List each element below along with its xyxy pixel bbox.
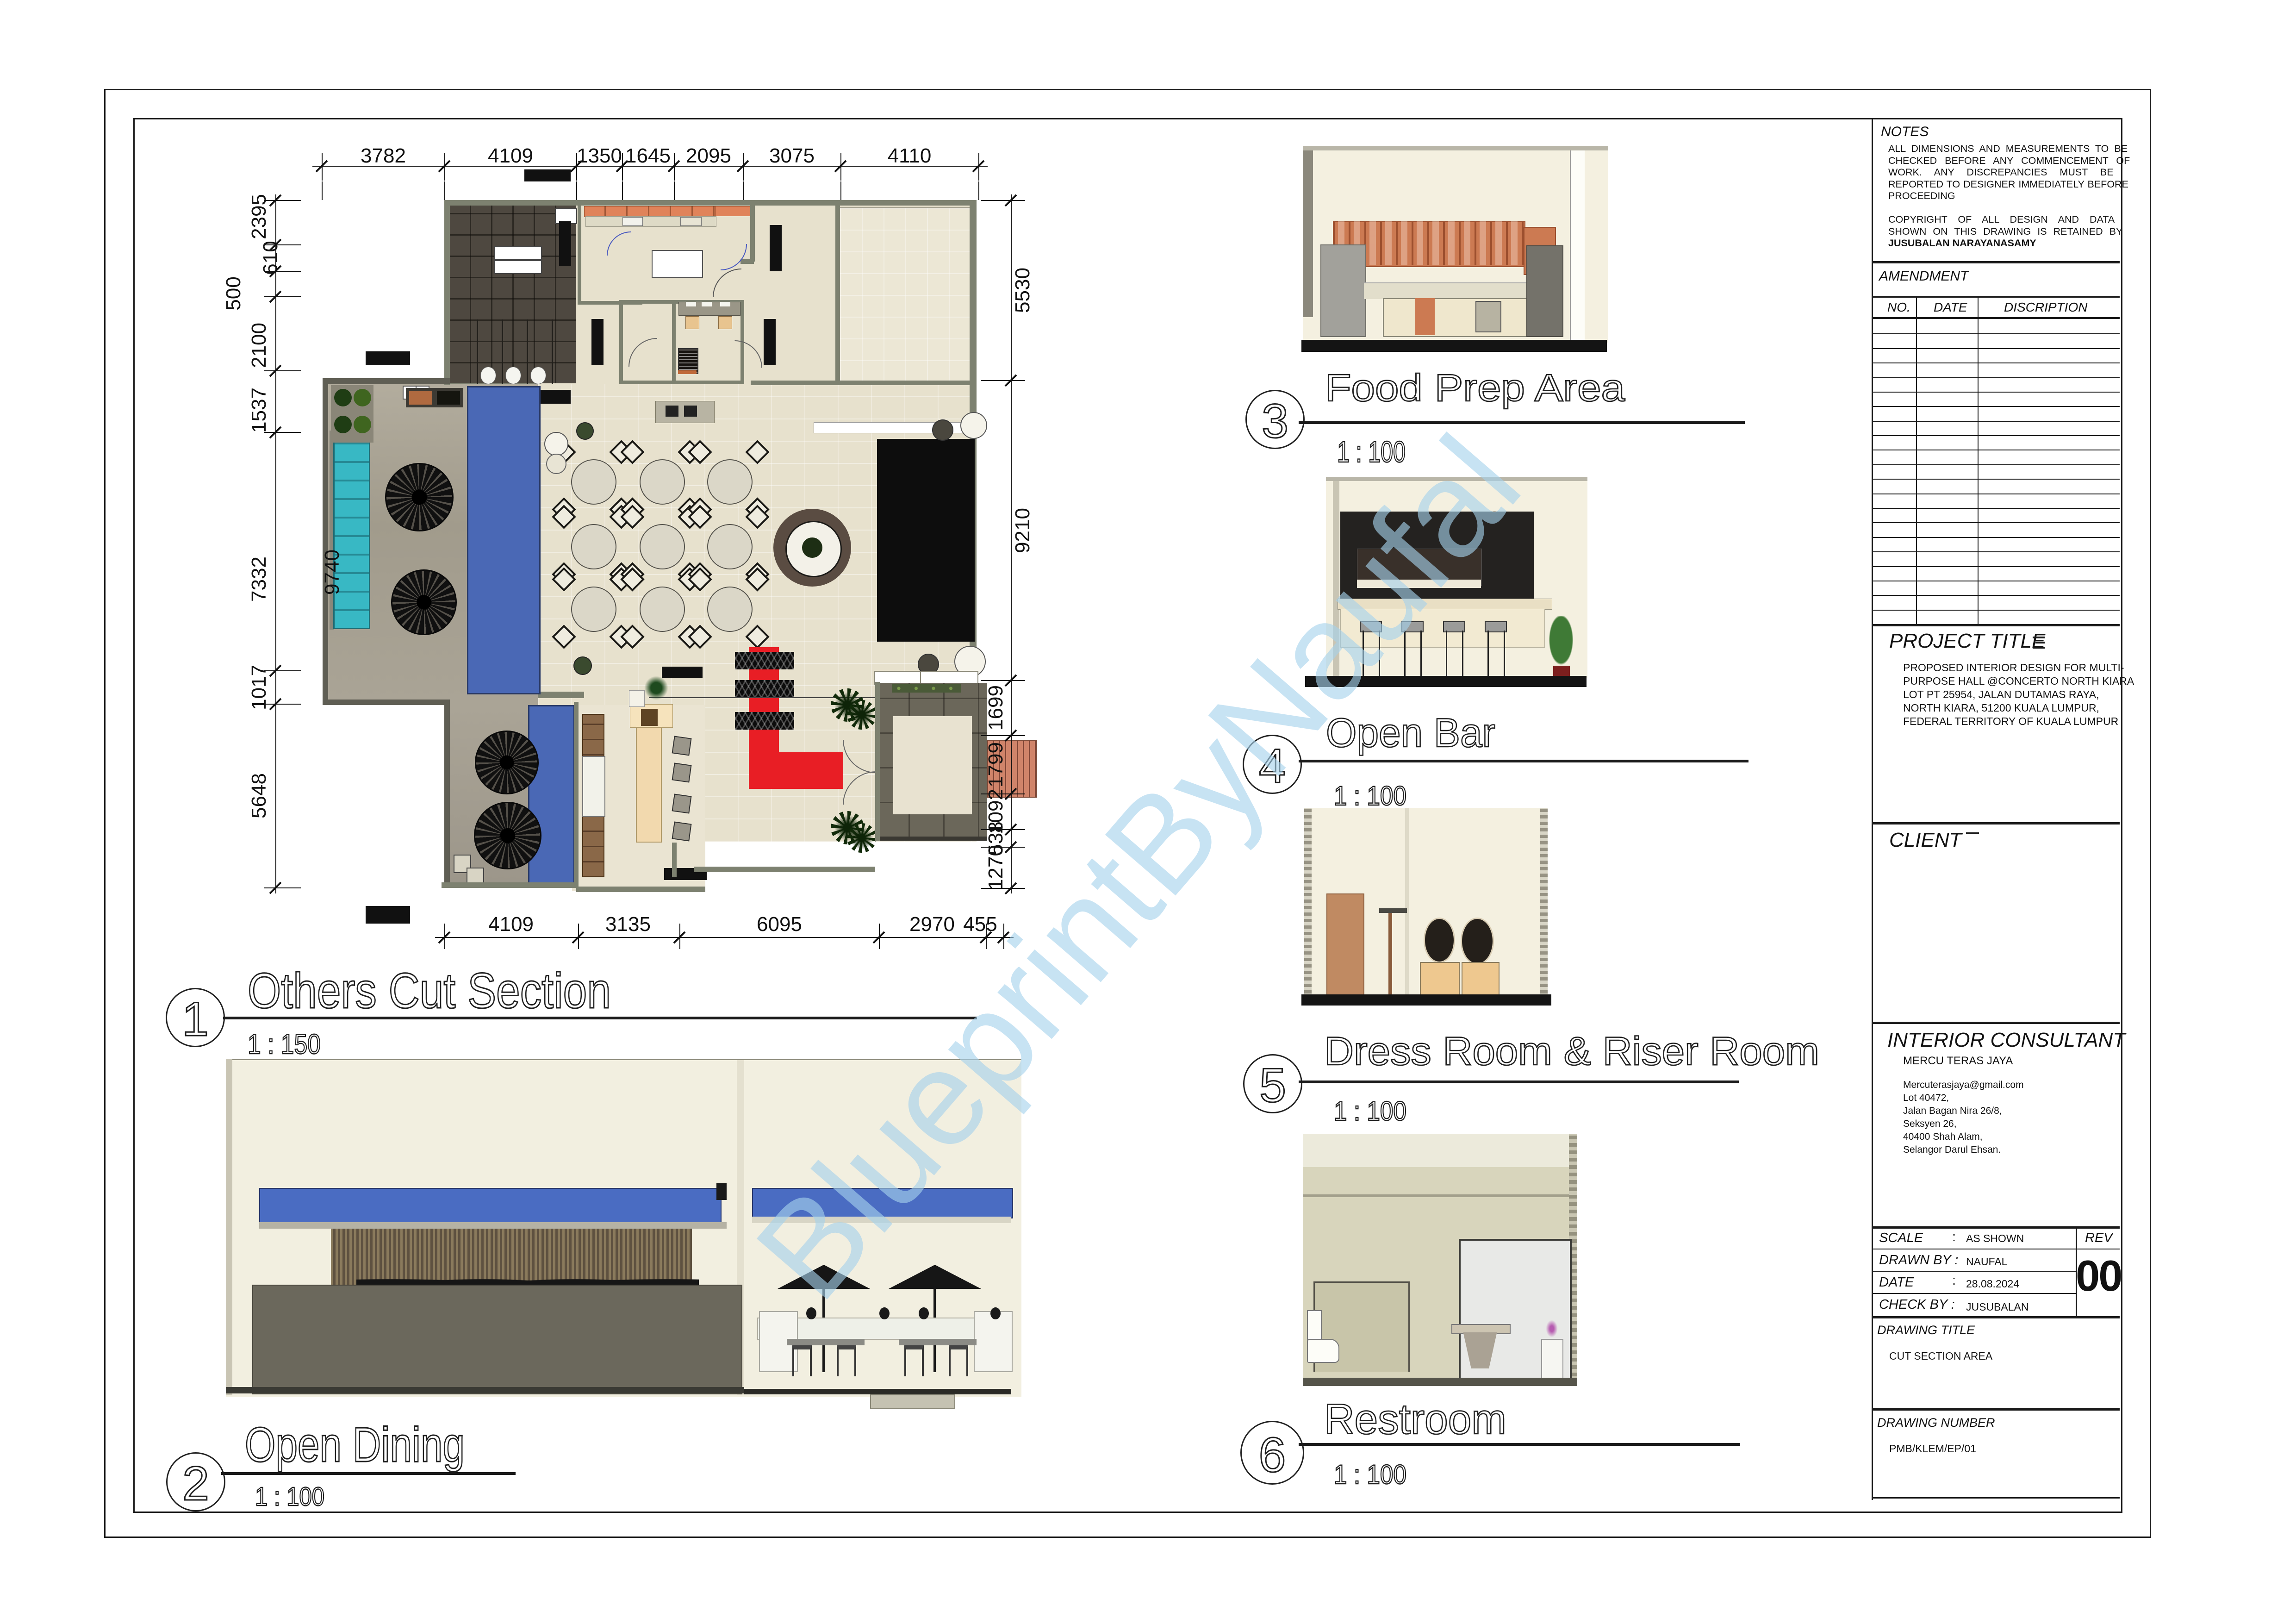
svg-text:3: 3 <box>1262 394 1288 448</box>
svg-text:6: 6 <box>1259 1428 1286 1482</box>
svg-text:Dress Room & Riser Room: Dress Room & Riser Room <box>1324 1029 1819 1074</box>
svg-text:5: 5 <box>1259 1059 1286 1112</box>
svg-text:1 : 100: 1 : 100 <box>1334 1460 1406 1490</box>
svg-text:1 : 150: 1 : 150 <box>248 1030 321 1060</box>
svg-text:Restroom: Restroom <box>1324 1396 1506 1443</box>
svg-text:Others Cut Section: Others Cut Section <box>248 963 611 1018</box>
svg-text:1: 1 <box>182 993 209 1046</box>
svg-text:1 : 100: 1 : 100 <box>1334 1096 1406 1126</box>
svg-text:2: 2 <box>182 1457 209 1511</box>
svg-text:1 : 100: 1 : 100 <box>255 1482 324 1512</box>
svg-text:Open Dining: Open Dining <box>245 1418 465 1472</box>
